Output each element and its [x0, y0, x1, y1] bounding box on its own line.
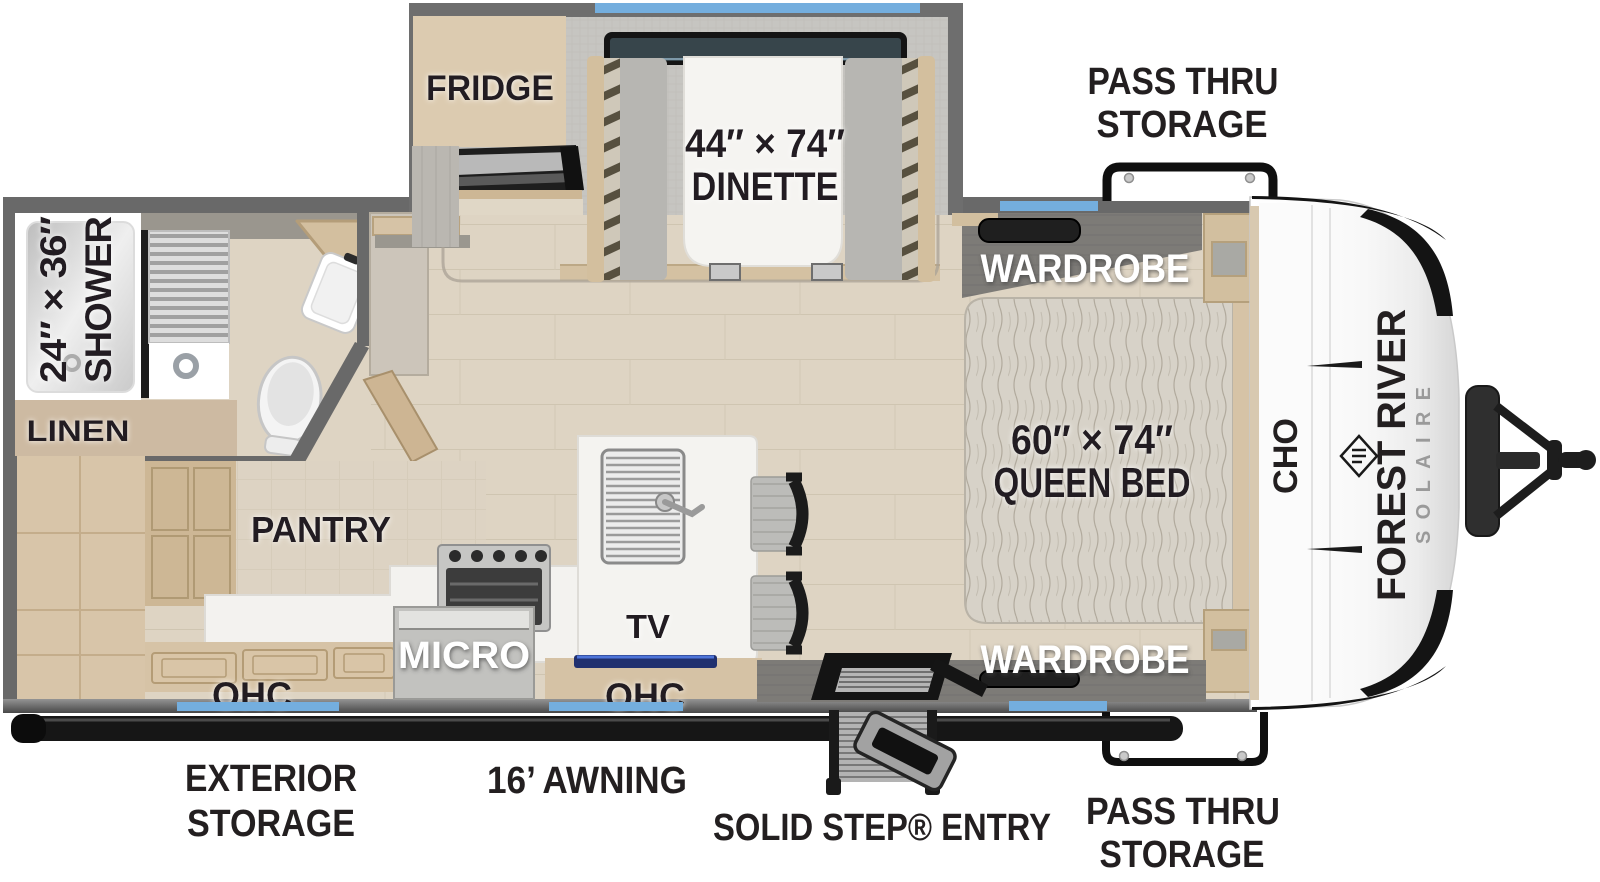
svg-text:LINEN: LINEN: [27, 415, 130, 448]
svg-text:WARDROBE: WARDROBE: [981, 247, 1190, 291]
svg-text:24″ × 36″: 24″ × 36″: [33, 216, 74, 383]
svg-text:FRIDGE: FRIDGE: [426, 69, 554, 108]
svg-text:STORAGE: STORAGE: [187, 803, 355, 845]
svg-text:SOLAIRE: SOLAIRE: [1413, 378, 1435, 544]
svg-text:SOLID STEP® ENTRY: SOLID STEP® ENTRY: [713, 807, 1051, 849]
svg-text:WARDROBE: WARDROBE: [981, 638, 1190, 682]
svg-text:PASS THRU: PASS THRU: [1086, 791, 1280, 833]
svg-text:DINETTE: DINETTE: [692, 165, 839, 209]
svg-text:SHOWER: SHOWER: [78, 217, 119, 383]
svg-text:44″ × 74″: 44″ × 74″: [685, 122, 845, 166]
svg-text:TV: TV: [626, 608, 670, 645]
svg-text:60″ × 74″: 60″ × 74″: [1011, 416, 1173, 463]
svg-text:STORAGE: STORAGE: [1097, 104, 1268, 146]
svg-text:QUEEN BED: QUEEN BED: [994, 459, 1191, 506]
svg-text:EXTERIOR: EXTERIOR: [185, 758, 357, 800]
svg-text:PASS THRU: PASS THRU: [1088, 61, 1279, 103]
svg-text:16’ AWNING: 16’ AWNING: [487, 760, 687, 802]
svg-text:PANTRY: PANTRY: [251, 509, 391, 550]
svg-text:MICRO: MICRO: [398, 635, 530, 677]
svg-text:CHO: CHO: [1267, 418, 1305, 494]
svg-text:STORAGE: STORAGE: [1100, 834, 1265, 876]
